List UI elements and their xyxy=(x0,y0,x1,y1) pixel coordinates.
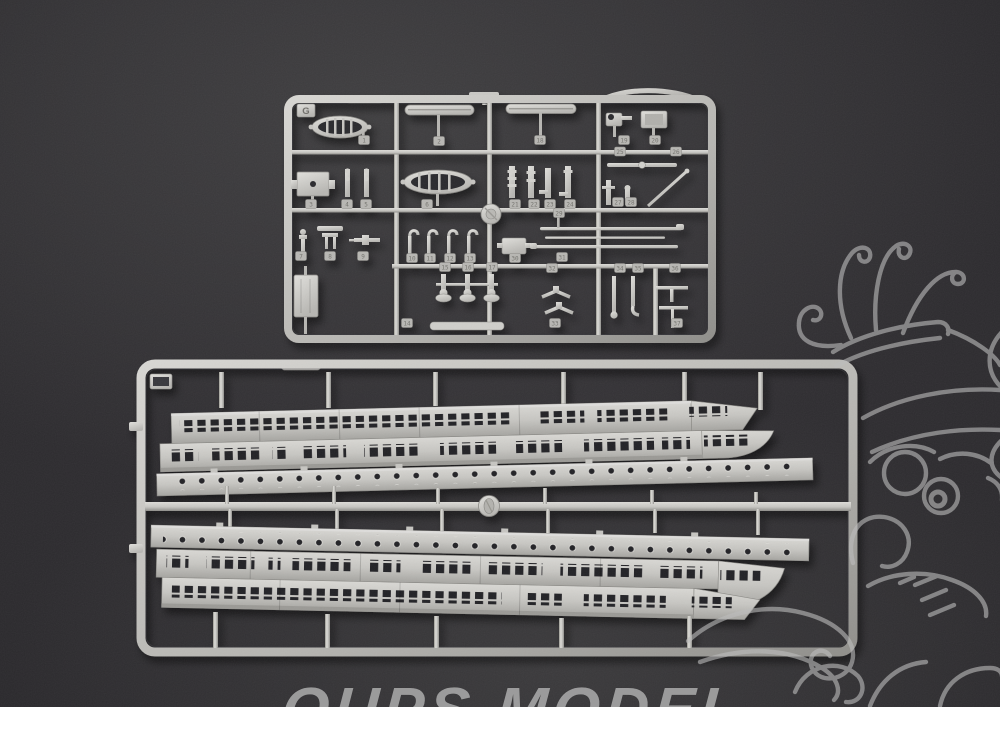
watermark-text: OUPS MODEL xyxy=(280,674,745,707)
photo-grain xyxy=(0,0,1000,707)
white-margin xyxy=(0,707,1000,750)
kit-photo: G xyxy=(0,0,1000,707)
photo-page: G xyxy=(0,0,1000,750)
photo-graphics: G xyxy=(0,0,1000,707)
